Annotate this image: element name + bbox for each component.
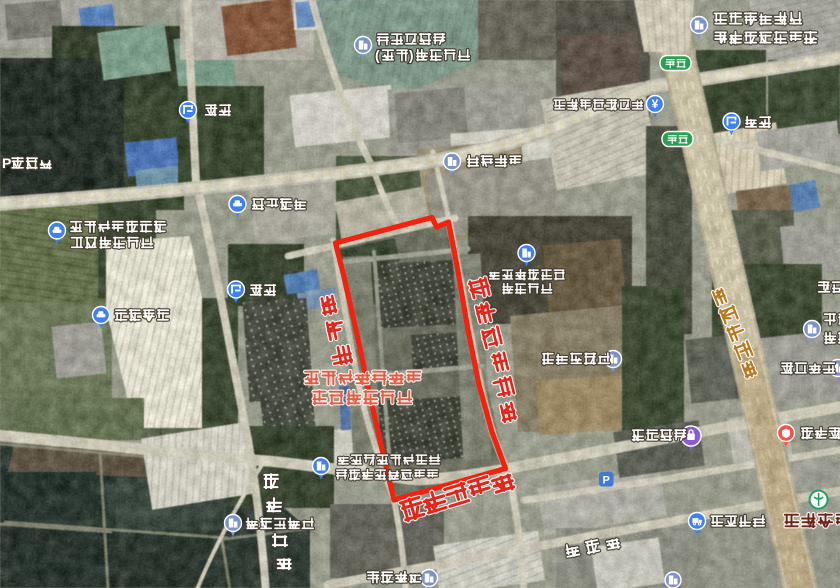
svg-text:(: ( — [375, 47, 380, 63]
svg-text:P: P — [2, 155, 11, 171]
svg-text:¥: ¥ — [652, 97, 659, 111]
svg-text:): ) — [409, 47, 414, 63]
svg-text:P: P — [603, 475, 610, 487]
